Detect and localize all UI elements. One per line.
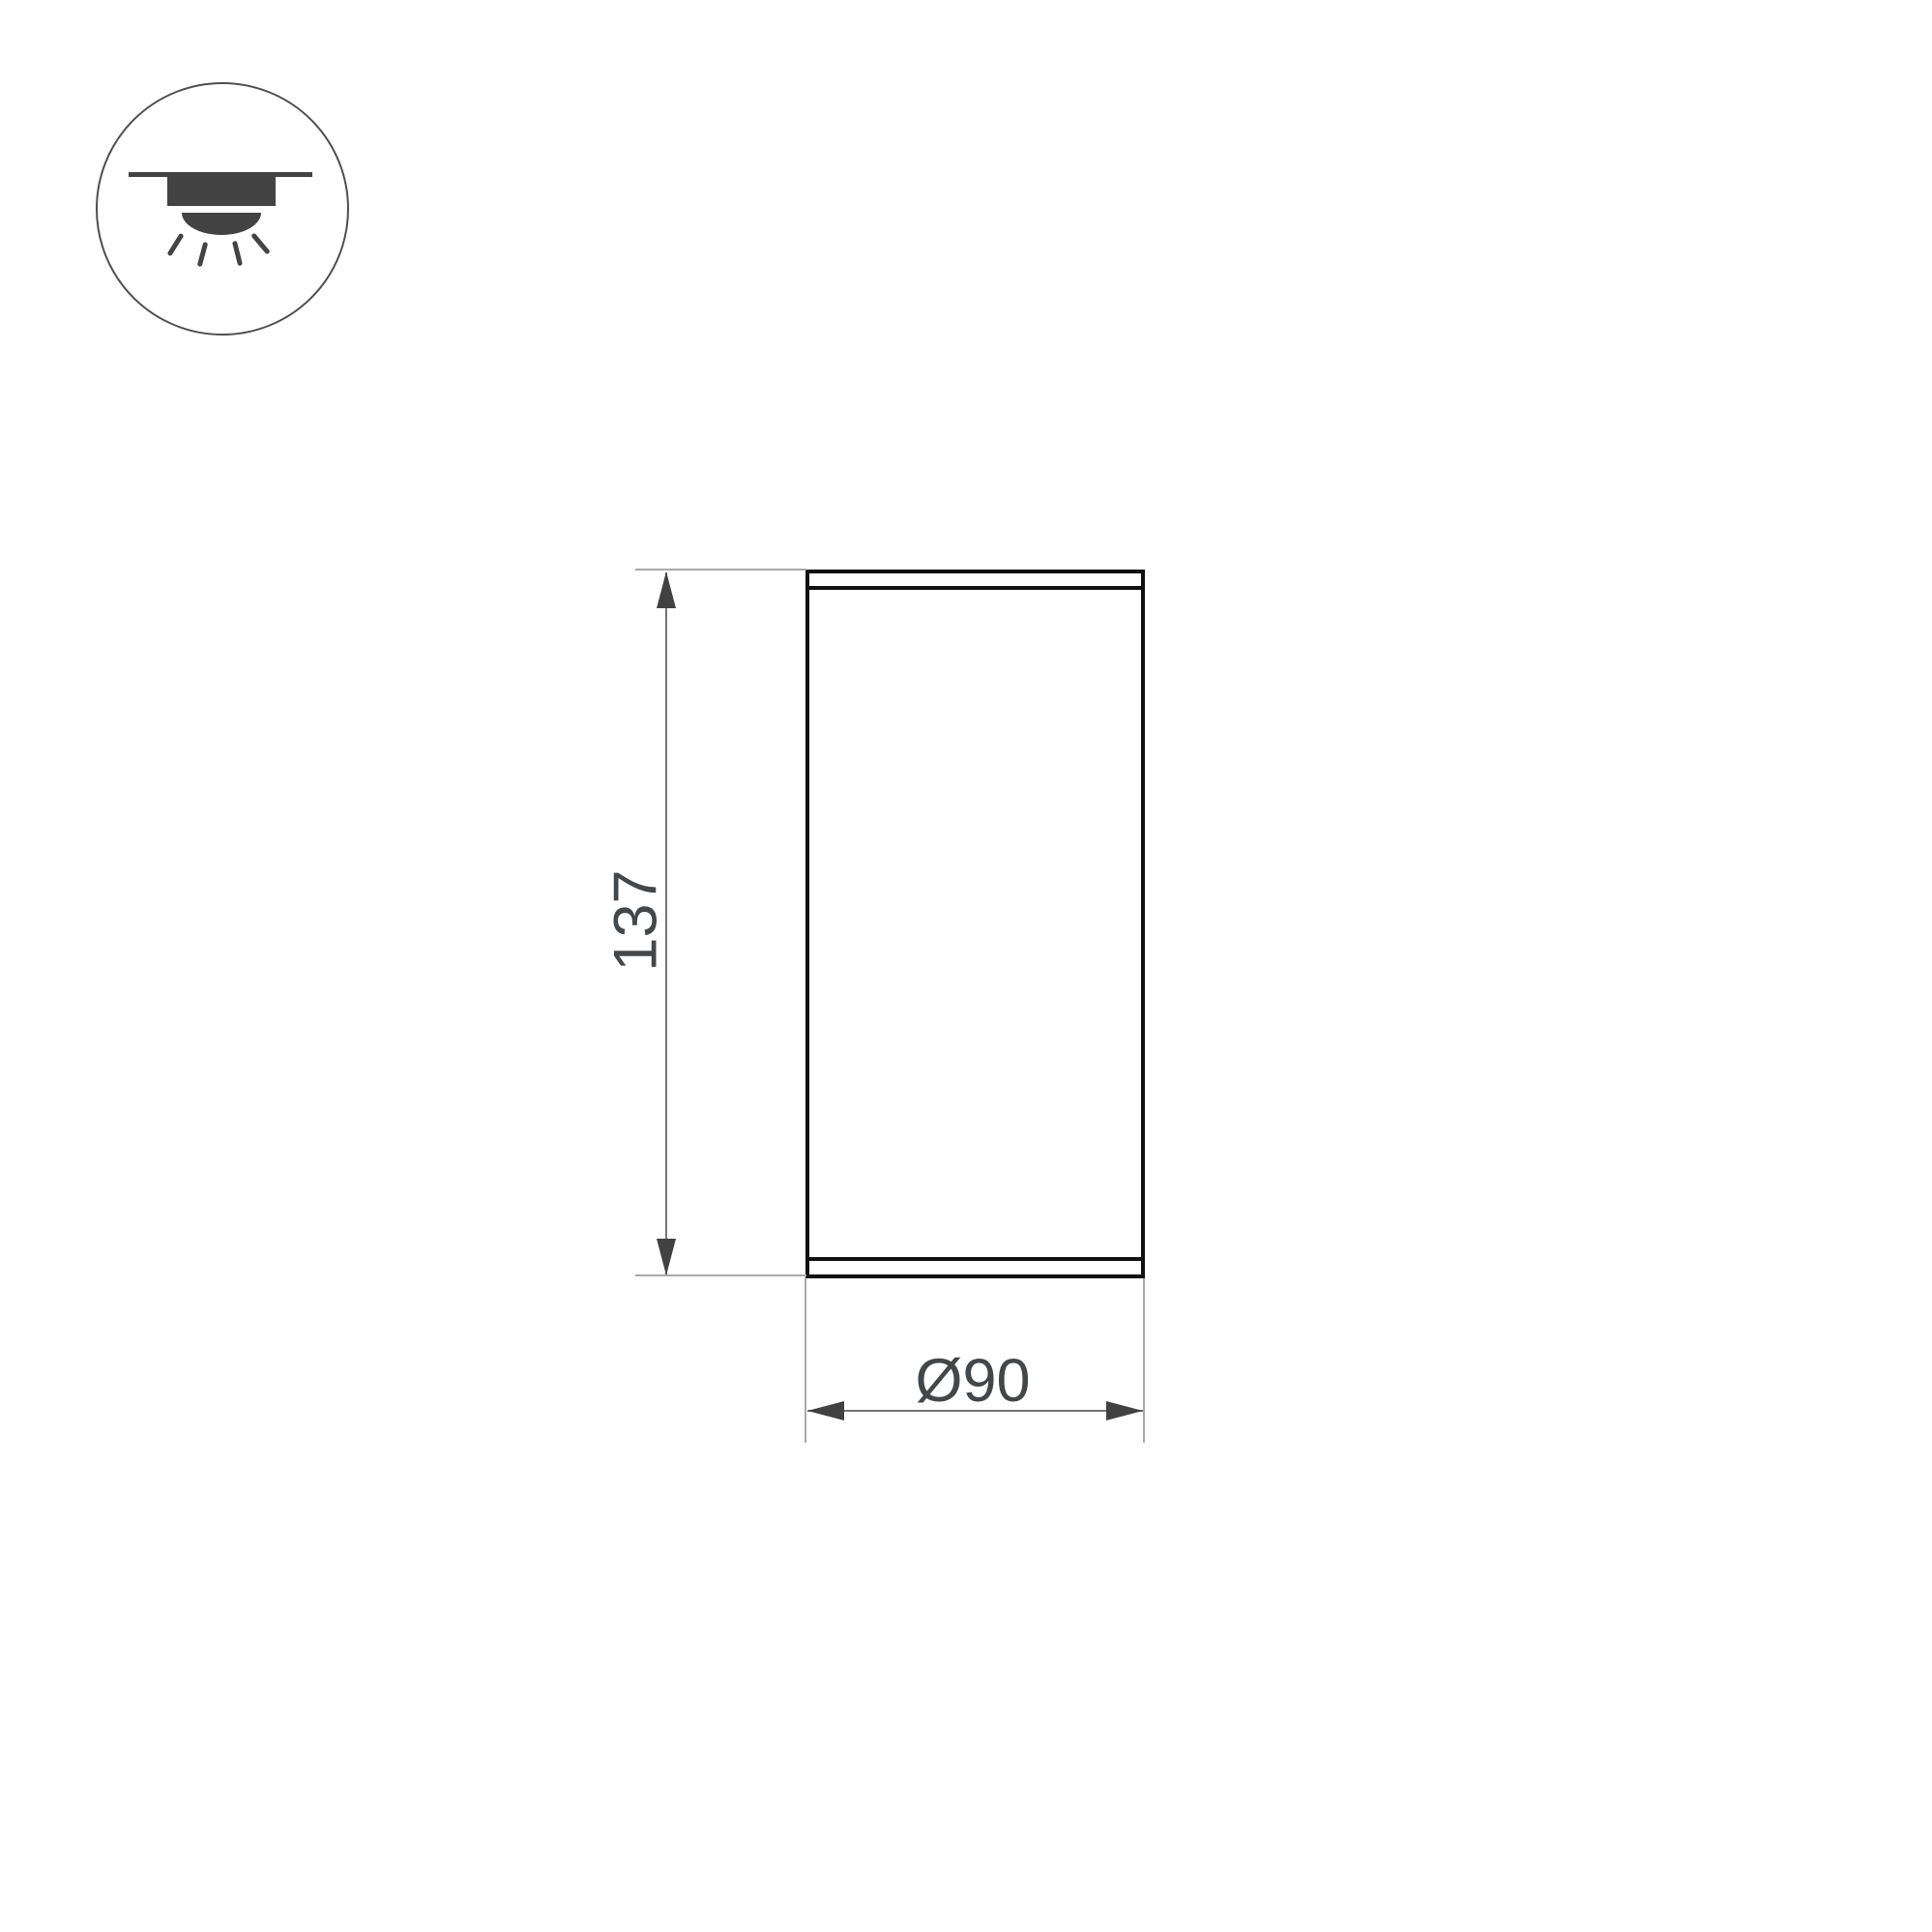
height-dimension-label: 137 [606,869,667,971]
mount-type-badge [96,82,349,336]
technical-drawing-canvas: 137 Ø90 [0,0,1932,1932]
extension-line-right [1143,1278,1145,1443]
fixture-bottom-cap-line [805,1257,1145,1261]
arrowhead-up-icon [657,571,676,608]
extension-line-left [805,1278,806,1443]
diameter-dimension-label: Ø90 [828,1351,1118,1412]
fixture-body-icon [167,175,276,206]
fixture-outline [805,570,1145,1278]
extension-line-top [635,569,806,571]
fixture-top-cap-line [805,586,1145,590]
arrowhead-down-icon [657,1239,676,1275]
